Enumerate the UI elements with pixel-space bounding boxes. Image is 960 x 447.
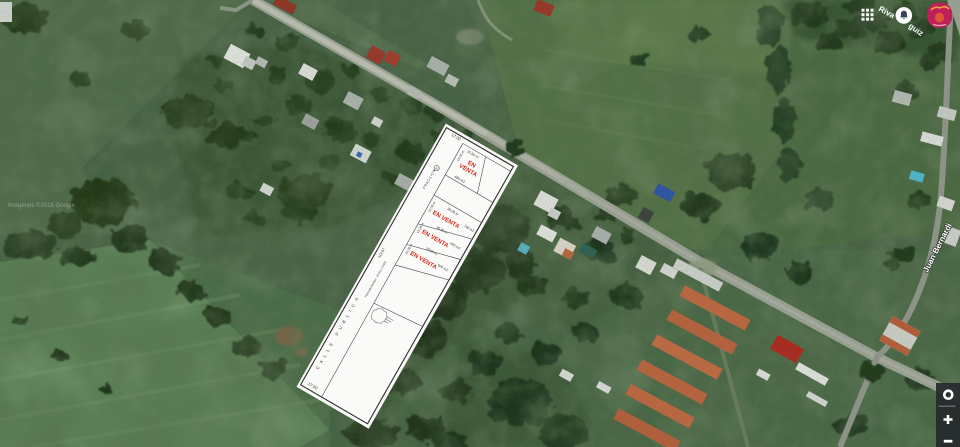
svg-text:Imágenes ©2016 Google: Imágenes ©2016 Google xyxy=(8,202,75,209)
